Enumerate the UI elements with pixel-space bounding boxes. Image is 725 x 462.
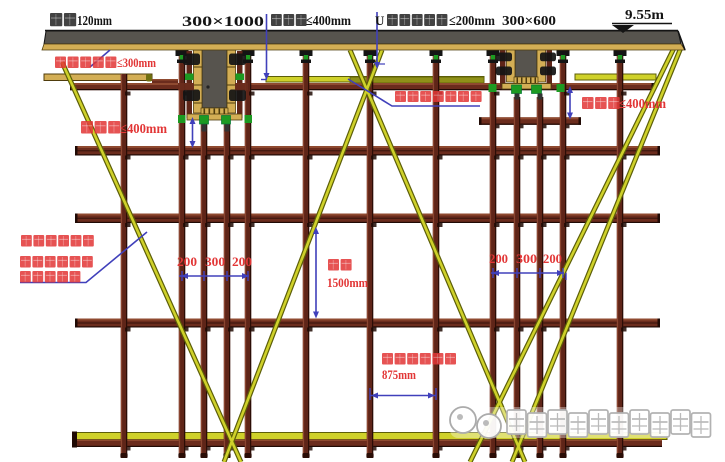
svg-text:300×1000: 300×1000 — [182, 14, 264, 30]
svg-text:200: 200 — [489, 251, 508, 266]
svg-text:≤400mm: ≤400mm — [306, 13, 352, 28]
svg-text:9.55m: 9.55m — [625, 8, 664, 23]
svg-text:200: 200 — [177, 254, 197, 269]
svg-text:300×600: 300×600 — [502, 13, 556, 28]
svg-text:1500mm: 1500mm — [327, 275, 368, 290]
svg-text:200: 200 — [543, 251, 562, 266]
svg-text:875mm: 875mm — [382, 367, 416, 382]
svg-text:300: 300 — [516, 251, 537, 266]
svg-text:≤400mm: ≤400mm — [619, 96, 667, 111]
svg-text:300: 300 — [205, 254, 225, 269]
svg-text:200: 200 — [232, 254, 252, 269]
svg-text:≤400mm: ≤400mm — [120, 122, 167, 137]
svg-text:U: U — [375, 13, 385, 28]
svg-text:120mm: 120mm — [77, 13, 113, 28]
svg-text:≤300mm: ≤300mm — [117, 56, 156, 70]
svg-text:≤200mm: ≤200mm — [449, 13, 496, 28]
